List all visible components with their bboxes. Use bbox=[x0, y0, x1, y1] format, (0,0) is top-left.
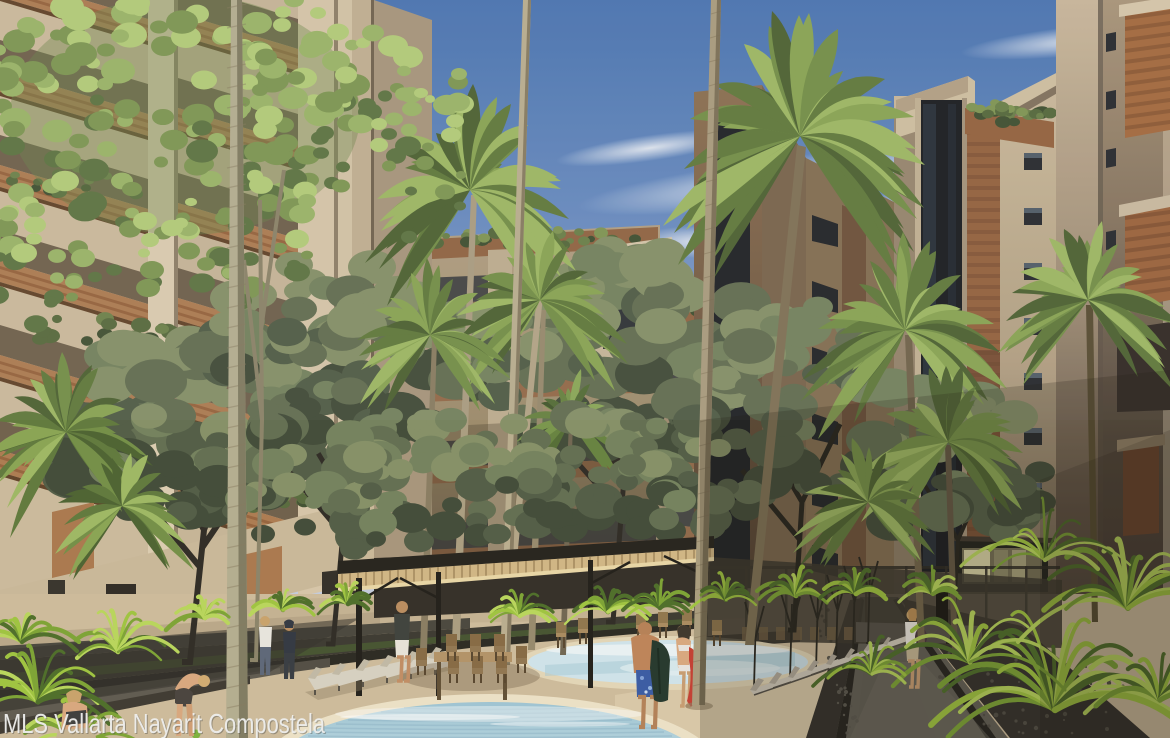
svg-text:MLS Vallarta Nayarit Compostel: MLS Vallarta Nayarit Compostela bbox=[3, 708, 325, 738]
